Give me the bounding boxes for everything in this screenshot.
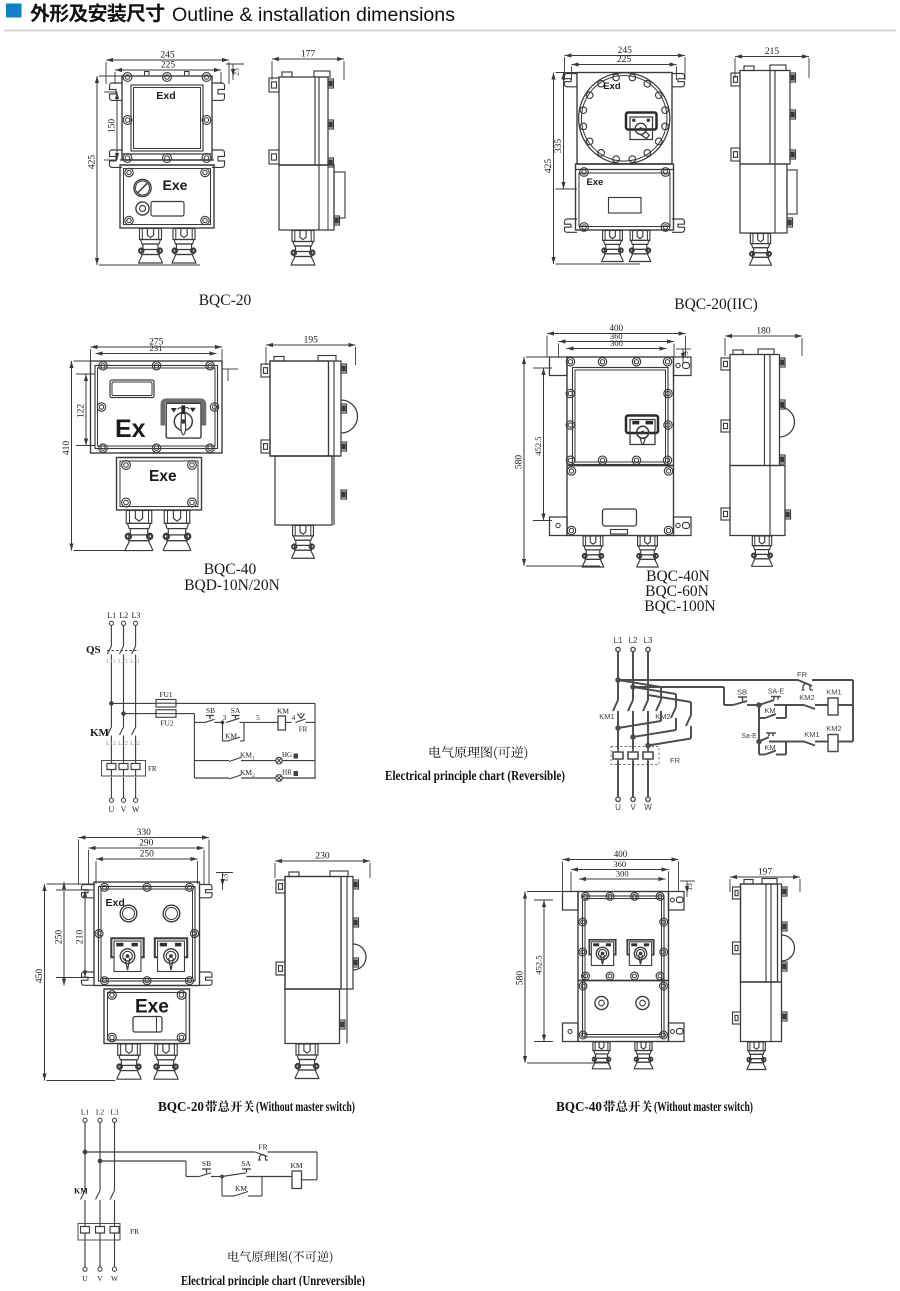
svg-text:L12: L12: [106, 741, 116, 747]
svg-text:Exe: Exe: [135, 997, 169, 1018]
svg-text:SA: SA: [231, 706, 241, 715]
svg-text:V: V: [97, 1274, 103, 1283]
svg-text:BQC-40: BQC-40: [556, 1099, 602, 1114]
svg-text:425: 425: [88, 155, 98, 170]
svg-text:230: 230: [315, 852, 330, 862]
svg-text:L1: L1: [107, 611, 116, 620]
svg-text:400: 400: [614, 849, 628, 859]
svg-text:FR: FR: [148, 765, 157, 773]
svg-text:122: 122: [77, 404, 87, 419]
svg-text:290: 290: [139, 839, 154, 849]
svg-text:410: 410: [62, 441, 72, 456]
svg-text:Electrical principle chart (Un: Electrical principle chart (Unreversible…: [181, 1273, 365, 1286]
svg-text:W: W: [644, 803, 652, 812]
svg-text:197: 197: [758, 868, 773, 878]
svg-text:(Without master switch): (Without master switch): [256, 1099, 355, 1114]
svg-text:L1: L1: [81, 1108, 90, 1117]
svg-text:250: 250: [55, 930, 65, 945]
svg-text:KM: KM: [74, 1187, 88, 1196]
svg-text:Exe: Exe: [587, 177, 604, 188]
svg-text:FU2: FU2: [160, 719, 174, 728]
svg-text:Ex: Ex: [115, 415, 146, 443]
svg-text:L2: L2: [96, 1108, 105, 1117]
svg-text:HR: HR: [282, 769, 292, 777]
svg-text:KM: KM: [240, 768, 252, 777]
svg-text:KM1: KM1: [826, 688, 841, 697]
svg-text:452.5: 452.5: [533, 436, 543, 455]
svg-text:W: W: [132, 805, 140, 814]
svg-text:215: 215: [765, 47, 780, 57]
svg-text:225: 225: [161, 61, 176, 71]
svg-text:L31: L31: [130, 659, 140, 665]
svg-text:L2: L2: [119, 611, 128, 620]
svg-text:450: 450: [35, 969, 45, 984]
svg-text:KM: KM: [764, 743, 775, 752]
svg-text:KM: KM: [90, 727, 110, 739]
svg-text:13: 13: [685, 883, 694, 891]
svg-text:FR: FR: [797, 670, 808, 679]
svg-text:HG: HG: [282, 751, 292, 759]
svg-text:SB: SB: [206, 706, 215, 715]
svg-text:Exe: Exe: [149, 468, 177, 485]
svg-text:U: U: [82, 1274, 88, 1283]
svg-text:150: 150: [108, 119, 118, 134]
svg-text:(Without master switch): (Without master switch): [654, 1099, 753, 1114]
svg-text:231: 231: [150, 343, 163, 353]
svg-text:BQC-20(IIC): BQC-20(IIC): [674, 296, 758, 313]
svg-text:L3: L3: [110, 1108, 119, 1117]
svg-text:KM: KM: [290, 1161, 302, 1170]
svg-text:300: 300: [616, 869, 629, 879]
svg-text:210: 210: [76, 930, 86, 945]
svg-text:BQD-10N/20N: BQD-10N/20N: [184, 577, 280, 594]
svg-text:L22: L22: [118, 741, 128, 747]
svg-text:U: U: [109, 805, 115, 814]
svg-text:335: 335: [554, 139, 564, 154]
svg-text:13: 13: [220, 874, 230, 883]
svg-text:Exe: Exe: [163, 177, 188, 193]
svg-text:452.5: 452.5: [534, 955, 544, 974]
svg-text:Electrical principle chart (Re: Electrical principle chart (Reversible): [385, 768, 565, 783]
svg-text:KM: KM: [240, 751, 252, 760]
svg-text:Exd: Exd: [156, 90, 175, 102]
svg-text:BQC-20: BQC-20: [158, 1099, 204, 1114]
svg-text:23: 23: [232, 68, 241, 76]
svg-text:SB: SB: [202, 1159, 211, 1168]
svg-text:V: V: [630, 803, 636, 812]
svg-text:245: 245: [160, 51, 175, 61]
svg-text:KM1: KM1: [804, 730, 819, 739]
svg-text:KM: KM: [764, 706, 775, 715]
svg-text:L21: L21: [118, 659, 128, 665]
svg-text:3: 3: [223, 714, 227, 722]
svg-text:KM: KM: [225, 732, 237, 741]
svg-text:FR: FR: [130, 1227, 139, 1236]
svg-text:195: 195: [304, 336, 319, 346]
svg-text:4: 4: [292, 714, 296, 722]
svg-text:L1: L1: [614, 636, 623, 645]
svg-text:BQC-100N: BQC-100N: [644, 598, 715, 615]
svg-text:KM: KM: [235, 1184, 247, 1193]
svg-text:250: 250: [140, 850, 155, 860]
svg-text:SB: SB: [737, 688, 747, 697]
svg-text:KM1: KM1: [599, 712, 614, 721]
svg-text:FR: FR: [670, 756, 681, 765]
svg-text:L32: L32: [130, 741, 140, 747]
svg-text:360: 360: [613, 859, 626, 869]
svg-text:L3: L3: [131, 611, 140, 620]
svg-text:W: W: [111, 1274, 119, 1283]
svg-text:L2: L2: [629, 636, 638, 645]
svg-text:L11: L11: [106, 659, 115, 665]
svg-text:180: 180: [756, 327, 771, 337]
svg-text:KM2: KM2: [655, 712, 670, 721]
svg-text:SA: SA: [241, 1159, 251, 1168]
svg-text:U: U: [615, 803, 621, 812]
svg-text:BQC-20: BQC-20: [199, 292, 252, 309]
svg-text:Sa-E: Sa-E: [741, 733, 757, 740]
svg-text:225: 225: [617, 55, 632, 65]
svg-text:FR: FR: [258, 1143, 267, 1152]
svg-text:5: 5: [256, 714, 260, 722]
svg-text:KM: KM: [277, 707, 289, 716]
svg-text:SA-E: SA-E: [768, 689, 785, 696]
svg-text:425: 425: [544, 159, 554, 174]
svg-text:177: 177: [301, 50, 316, 60]
svg-text:Exd: Exd: [106, 897, 125, 909]
svg-text:BQC-40: BQC-40: [204, 561, 257, 578]
svg-text:FR: FR: [299, 726, 308, 734]
svg-text:300: 300: [610, 338, 623, 348]
svg-text:QS: QS: [86, 644, 101, 656]
svg-text:KM2: KM2: [826, 724, 841, 733]
svg-text:FU1: FU1: [159, 690, 173, 699]
svg-text:KM2: KM2: [799, 693, 814, 702]
svg-text:580: 580: [515, 455, 525, 470]
svg-text:Outline & installation dimensi: Outline & installation dimensions: [172, 4, 455, 26]
svg-text:330: 330: [137, 828, 152, 838]
svg-text:L3: L3: [644, 636, 653, 645]
svg-text:V: V: [121, 805, 127, 814]
svg-text:Exd: Exd: [603, 81, 621, 92]
svg-text:580: 580: [516, 971, 526, 986]
